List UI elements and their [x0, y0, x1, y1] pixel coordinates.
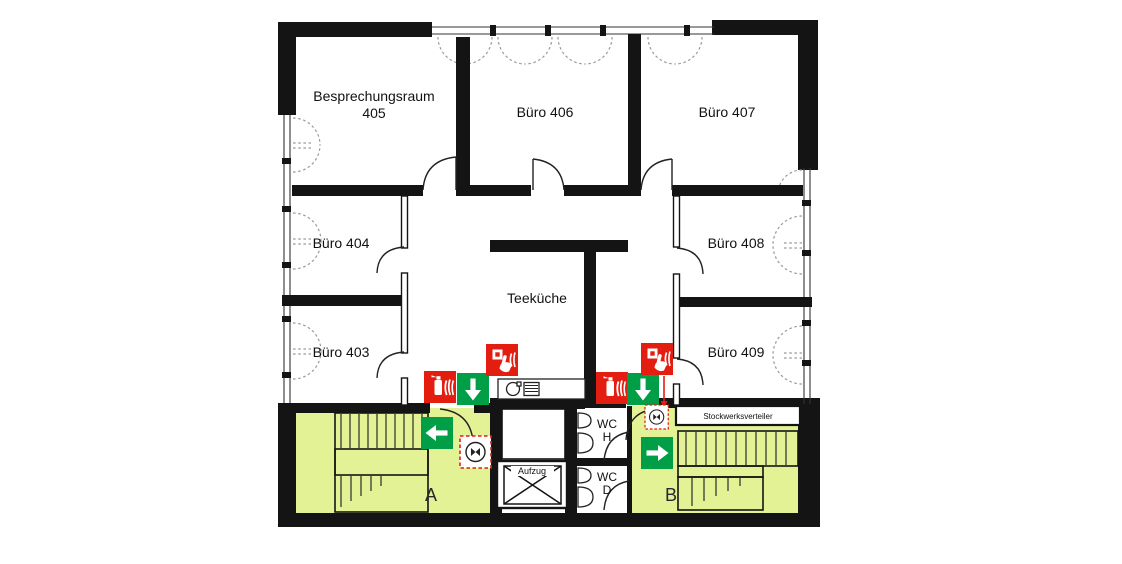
manual-call-point-icon — [641, 343, 673, 375]
floor-plan-canvas: Stockwerksverteiler Aufzug WC H WC D — [0, 0, 1122, 564]
stockwerksverteiler-label: Stockwerksverteiler — [703, 412, 773, 421]
wc-h-fixtures — [578, 413, 593, 453]
elevator-area: Aufzug — [497, 409, 567, 508]
room-label-besprechungsraum: Besprechungsraum — [313, 88, 434, 104]
alarm-sounder-icon — [645, 405, 668, 429]
fire-extinguisher-icon — [424, 371, 456, 403]
manual-call-point-icon — [486, 344, 518, 376]
room-label-buero-409: Büro 409 — [708, 344, 765, 360]
aufzug-label: Aufzug — [518, 466, 546, 476]
wc-h-label-line1: WC — [597, 417, 617, 431]
stairwell-b-label: B — [665, 485, 677, 505]
stairwell-a-label: A — [425, 485, 437, 505]
room-label-buero-408: Büro 408 — [708, 235, 765, 251]
stove-symbol — [524, 383, 539, 396]
room-label-besprechungsraum-number: 405 — [362, 105, 386, 121]
wc-d-label-line2: D — [603, 483, 612, 497]
room-label-buero-404: Büro 404 — [313, 235, 370, 251]
wc-d-fixtures — [578, 468, 593, 507]
wc-h-label-line2: H — [603, 430, 612, 444]
fire-extinguisher-icon — [596, 372, 628, 404]
escape-route-down-icon — [627, 373, 659, 405]
room-label-teekueche: Teeküche — [507, 290, 567, 306]
floor-plan-svg: Stockwerksverteiler Aufzug WC H WC D — [0, 0, 1122, 564]
kitchenette-counter — [498, 379, 585, 399]
alarm-sounder-icon — [460, 436, 491, 468]
escape-route-down-icon — [457, 373, 489, 405]
escape-route-left-icon — [421, 417, 453, 449]
escape-route-right-icon — [641, 437, 673, 469]
room-label-buero-403: Büro 403 — [313, 344, 370, 360]
room-label-buero-407: Büro 407 — [699, 104, 756, 120]
room-label-buero-406: Büro 406 — [517, 104, 574, 120]
stockwerksverteiler-box: Stockwerksverteiler — [676, 406, 800, 425]
wc-d-label-line1: WC — [597, 470, 617, 484]
